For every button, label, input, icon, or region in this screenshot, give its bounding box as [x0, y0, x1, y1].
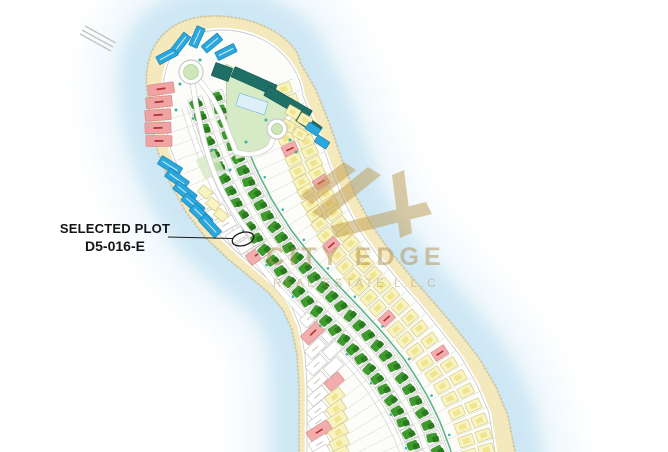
master-plan-canvas: SELECTED PLOT D5-016-E CITY EDGE REAL ES…	[0, 0, 668, 452]
roundabout-east	[267, 119, 287, 139]
roundabout-north	[179, 60, 203, 84]
selected-plot-callout: SELECTED PLOT D5-016-E	[48, 221, 182, 254]
selected-plot-id: D5-016-E	[48, 238, 182, 254]
selected-plot-title: SELECTED PLOT	[48, 221, 182, 236]
